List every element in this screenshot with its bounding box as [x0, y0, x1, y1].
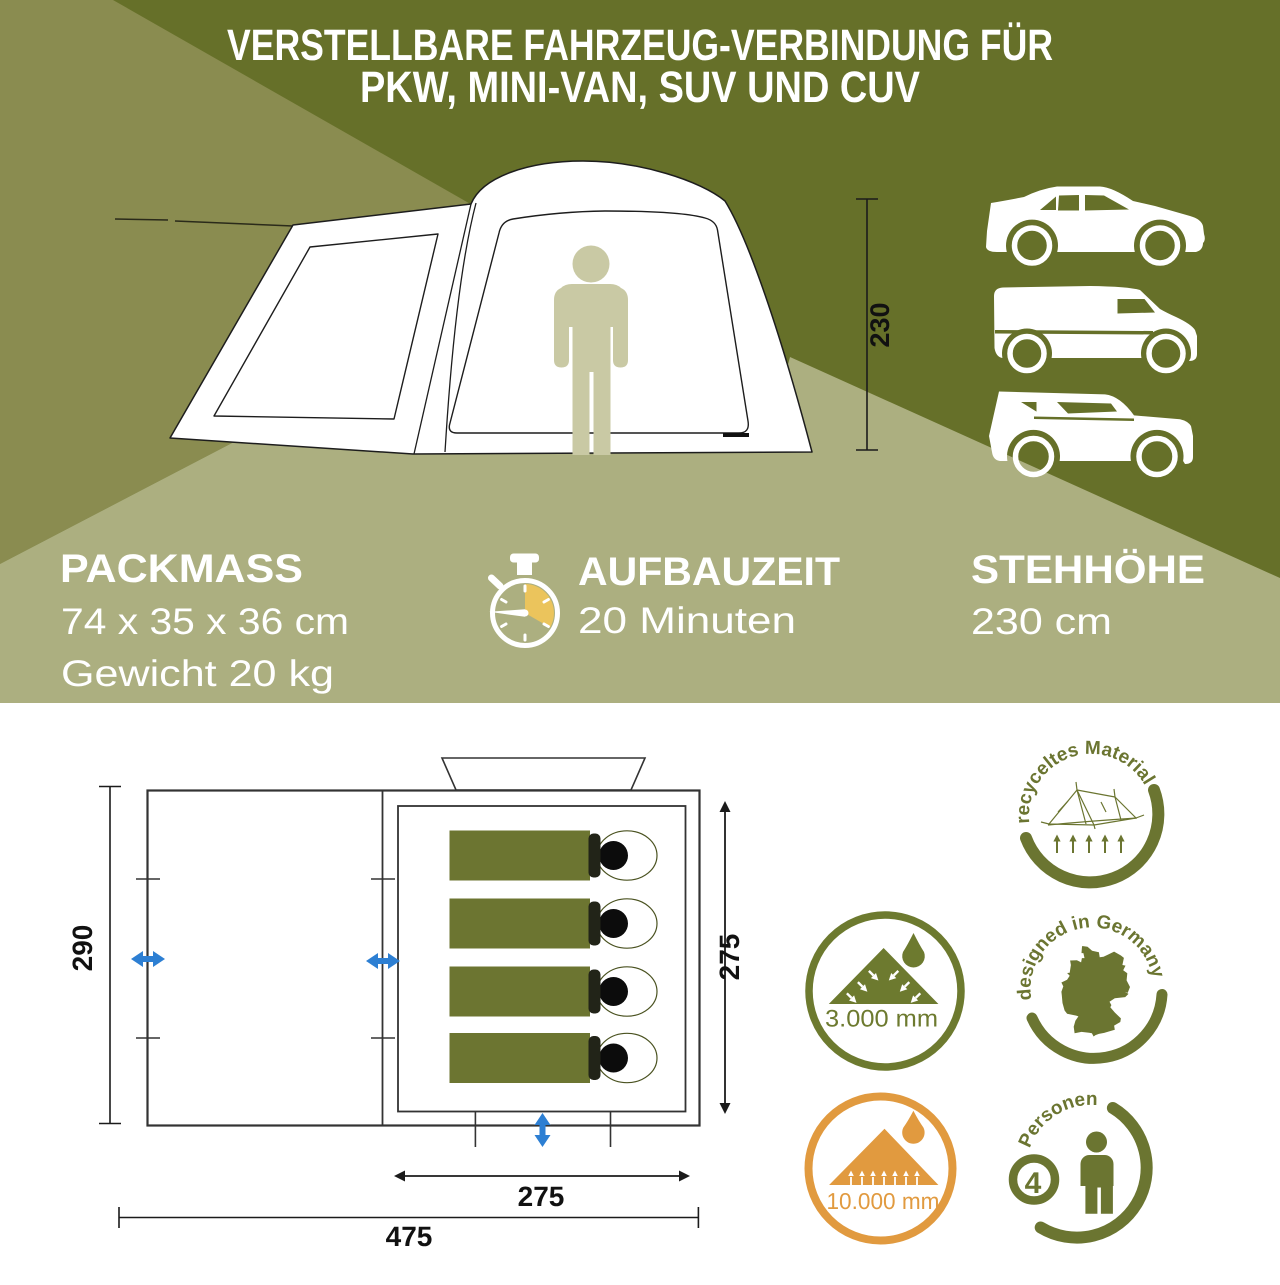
svg-text:STEHHÖHE: STEHHÖHE [971, 548, 1205, 592]
svg-text:Gewicht 20 kg: Gewicht 20 kg [61, 653, 334, 694]
svg-text:4: 4 [1025, 1167, 1042, 1200]
svg-text:PACKMASS: PACKMASS [60, 547, 303, 591]
svg-text:3.000 mm: 3.000 mm [825, 1006, 938, 1033]
svg-text:AUFBAUZEIT: AUFBAUZEIT [578, 550, 840, 594]
svg-text:230: 230 [865, 302, 895, 347]
svg-text:10.000 mm: 10.000 mm [827, 1188, 940, 1214]
svg-text:275: 275 [714, 934, 745, 981]
svg-text:475: 475 [386, 1221, 433, 1252]
svg-text:230 cm: 230 cm [971, 601, 1112, 642]
svg-text:20 Minuten: 20 Minuten [578, 600, 796, 641]
svg-text:290: 290 [67, 925, 98, 972]
svg-text:74 x 35 x 36 cm: 74 x 35 x 36 cm [61, 601, 349, 642]
svg-text:PKW, MINI-VAN, SUV UND CUV: PKW, MINI-VAN, SUV UND CUV [360, 63, 921, 112]
svg-text:275: 275 [518, 1181, 565, 1212]
